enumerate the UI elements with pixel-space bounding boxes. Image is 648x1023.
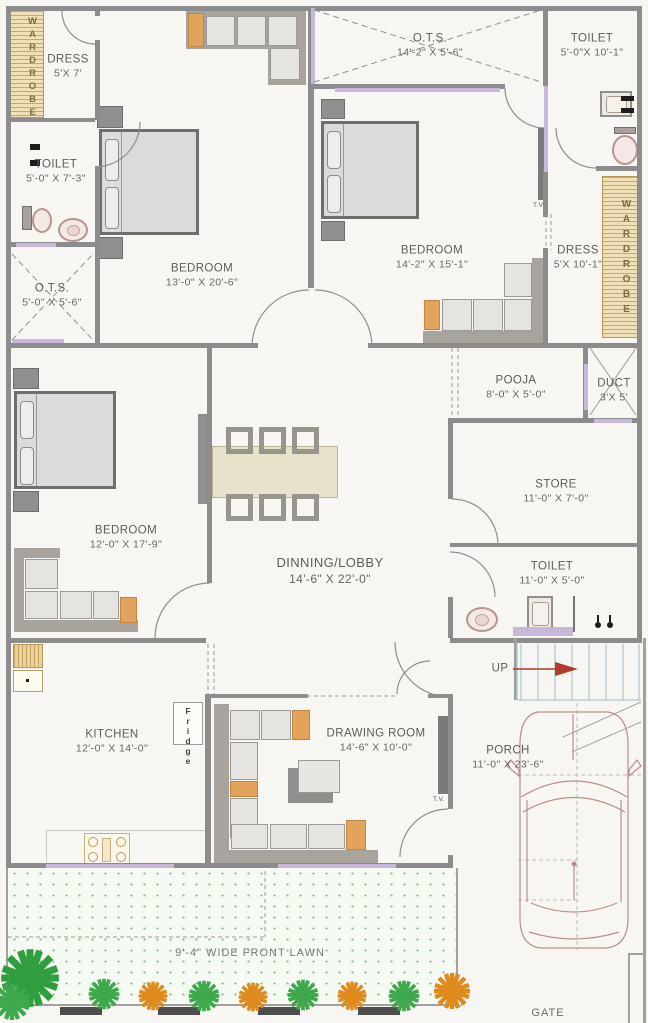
room-dims: 12'-0" X 14'-0" xyxy=(76,743,148,757)
room-name: BEDROOM xyxy=(90,524,162,539)
room-name: DRAWING ROOM xyxy=(327,727,426,742)
basin-bowl xyxy=(475,614,489,626)
stair-cut-marks xyxy=(563,702,641,752)
bedside-table xyxy=(13,368,39,389)
room-label-bedroom3: BEDROOM 12'-0" X 17'-9" xyxy=(90,524,162,553)
room-label-bedroom2: BEDROOM 14'-2" X 15'-1" xyxy=(396,244,468,273)
dining-chair xyxy=(259,427,286,454)
room-label-store: STORE 11'-0" X 7'-0" xyxy=(523,478,588,507)
stove-center xyxy=(102,838,111,862)
window xyxy=(12,339,64,343)
stair-wall xyxy=(514,638,517,700)
door-hardware xyxy=(30,144,40,150)
wall xyxy=(448,855,453,868)
window xyxy=(16,243,56,247)
wall xyxy=(448,694,453,809)
pillow xyxy=(105,187,119,229)
wall xyxy=(450,543,640,547)
faucet-stem xyxy=(597,615,599,622)
window xyxy=(278,864,396,868)
wall xyxy=(450,638,642,643)
room-name: O.T.S. xyxy=(22,282,82,297)
room-name: BEDROOM xyxy=(396,244,468,259)
room-name: POOJA xyxy=(486,374,546,389)
up-arrow xyxy=(513,662,578,676)
up-label: UP xyxy=(492,662,509,677)
sofa-cushion xyxy=(261,710,291,740)
gate-post-line xyxy=(628,953,630,1023)
porch-roof-grid xyxy=(518,703,641,950)
room-label-dress-left: DRESS 5'X 7' xyxy=(47,53,89,82)
mattress-line xyxy=(343,124,344,216)
sofa-accent xyxy=(346,820,366,850)
room-name: DRESS xyxy=(554,244,603,259)
sofa-accent xyxy=(230,781,258,797)
wall xyxy=(637,6,642,643)
pillow xyxy=(20,401,34,439)
room-name: PORCH xyxy=(472,744,544,759)
dining-chair xyxy=(292,494,319,521)
sofa-back xyxy=(14,548,24,630)
sofa-cushion xyxy=(231,824,268,849)
door-hardware xyxy=(621,108,634,113)
boundary-wall xyxy=(6,1004,458,1006)
wall xyxy=(428,694,450,698)
window xyxy=(46,864,174,868)
sofa-cushion xyxy=(268,16,297,46)
wc xyxy=(612,135,638,165)
gate-post-line xyxy=(628,953,644,955)
room-name: DINNING/LOBBY xyxy=(276,555,383,572)
room-dims: 8'-0" X 5'-0" xyxy=(486,389,546,403)
sofa-cushion xyxy=(230,742,258,780)
room-dims: 14'-2" X 5'-6" xyxy=(397,47,463,61)
lawn-label: 9'-4" WIDE FRONT LAWN xyxy=(175,946,325,960)
room-dims: 5'-0"X 10'-1" xyxy=(561,47,624,61)
dining-chair xyxy=(292,427,319,454)
room-dims: 13'-0" X 20'-6" xyxy=(166,277,238,291)
window xyxy=(513,627,573,636)
wall xyxy=(543,6,548,86)
wall xyxy=(10,118,95,122)
room-dims: 12'-0" X 17'-9" xyxy=(90,539,162,553)
wall xyxy=(543,248,548,346)
wc-tank xyxy=(614,127,636,134)
window xyxy=(311,8,315,84)
wc xyxy=(32,208,52,233)
room-name: TOILET xyxy=(519,560,584,575)
room-name: KITCHEN xyxy=(76,728,148,743)
room-name: TOILET xyxy=(561,32,624,47)
window xyxy=(594,419,632,423)
dining-chair xyxy=(226,427,253,454)
fence-strip xyxy=(358,1007,400,1015)
wall xyxy=(6,638,206,643)
pillow xyxy=(105,139,119,181)
room-label-dining: DINNING/LOBBY 14'-6" X 22'-0" xyxy=(276,555,383,587)
mattress-line xyxy=(121,132,122,232)
wall xyxy=(543,170,548,217)
sofa-accent xyxy=(292,710,310,740)
room-dims: 5'-0" X 5'-6" xyxy=(22,297,82,311)
sofa-cushion xyxy=(504,263,532,297)
sofa-cushion xyxy=(60,591,92,619)
bedside-table xyxy=(97,237,123,259)
floor-plan: T.V. T.V. Fridge xyxy=(0,0,648,1023)
wall xyxy=(95,40,100,120)
bedside-table xyxy=(97,106,123,128)
room-name: DRESS xyxy=(47,53,89,68)
tv-unit-drawing xyxy=(438,716,448,794)
sofa-accent xyxy=(424,300,440,330)
stove-burner xyxy=(116,852,126,862)
bedside-table xyxy=(13,491,39,512)
wall xyxy=(207,343,212,583)
tv-label: T.V. xyxy=(433,796,445,803)
sofa-accent xyxy=(120,597,137,623)
room-label-ots-left: O.T.S. 5'-0" X 5'-6" xyxy=(22,282,82,311)
window xyxy=(584,364,588,410)
room-dims: 5'X 7' xyxy=(47,68,89,82)
room-dims: 11'-0" X 23'-6" xyxy=(472,759,544,773)
room-label-bedroom1: BEDROOM 13'-0" X 20'-6" xyxy=(166,262,238,291)
fridge: Fridge xyxy=(173,702,203,745)
wall xyxy=(6,6,11,868)
sink-drain xyxy=(26,679,29,682)
sofa-cushion xyxy=(504,299,532,331)
wall xyxy=(95,166,100,347)
center-table xyxy=(298,760,340,793)
sofa-cushion xyxy=(93,591,119,619)
room-dims: 5'-0" X 7'-3" xyxy=(26,173,86,187)
wc-tank xyxy=(22,206,32,230)
room-dims: 5'X 10'-1" xyxy=(554,259,603,273)
room-label-dress-right: DRESS 5'X 10'-1" xyxy=(554,244,603,273)
dining-chair xyxy=(226,494,253,521)
room-label-ots-top: O.T.S. 14'-2" X 5'-6" xyxy=(397,32,463,61)
wall xyxy=(205,694,211,868)
wall xyxy=(448,418,453,499)
room-name: TOILET xyxy=(26,158,86,173)
bedside-table xyxy=(321,221,345,241)
sofa-cushion xyxy=(237,16,266,46)
room-dims: 11'-0" X 7'-0" xyxy=(523,493,588,507)
pillow xyxy=(327,175,341,213)
room-dims: 14'-6" X 10'-0" xyxy=(327,742,426,756)
wall xyxy=(368,343,642,348)
wall xyxy=(210,694,308,698)
sofa-back xyxy=(214,704,229,864)
sofa-cushion xyxy=(25,559,58,589)
wall xyxy=(596,166,637,171)
wall xyxy=(6,343,258,348)
fridge-label: Fridge xyxy=(183,706,193,766)
room-dims: 11'-0" X 5'-0" xyxy=(519,575,584,589)
wall xyxy=(448,597,453,638)
fence-strip xyxy=(60,1007,102,1015)
room-label-drawing: DRAWING ROOM 14'-6" X 10'-0" xyxy=(327,727,426,756)
faucet xyxy=(595,622,601,628)
sofa-cushion xyxy=(442,299,472,331)
sofa-cushion xyxy=(230,710,260,740)
boundary-wall xyxy=(456,868,458,1006)
room-label-porch: PORCH 11'-0" X 23'-6" xyxy=(472,744,544,773)
room-label-toilet-common: TOILET 11'-0" X 5'-0" xyxy=(519,560,584,589)
wc-bowl xyxy=(532,602,549,626)
room-name: BEDROOM xyxy=(166,262,238,277)
room-name: DUCT xyxy=(597,377,631,392)
room-label-toilet-right: TOILET 5'-0"X 10'-1" xyxy=(561,32,624,61)
room-label-duct: DUCT 3'X 5' xyxy=(597,377,631,406)
faucet-stem xyxy=(609,615,611,622)
stove-burner xyxy=(88,852,98,862)
sofa-cushion xyxy=(25,591,58,619)
fence-strip xyxy=(158,1007,200,1015)
room-label-kitchen: KITCHEN 12'-0" X 14'-0" xyxy=(76,728,148,757)
room-label-toilet-left: TOILET 5'-0" X 7'-3" xyxy=(26,158,86,187)
room-dims: 3'X 5' xyxy=(597,392,631,406)
stove-burner xyxy=(88,837,98,847)
pillow xyxy=(327,131,341,169)
sofa-back xyxy=(214,850,378,864)
room-name: STORE xyxy=(523,478,588,493)
bedside-table xyxy=(321,99,345,119)
room-label-wardrobe-right: WARDROBE xyxy=(610,186,632,332)
room-name: O.T.S. xyxy=(397,32,463,47)
room-dims: 14'-6" X 22'-0" xyxy=(276,572,383,588)
sofa-cushion xyxy=(308,824,345,849)
shower-divider xyxy=(573,596,575,632)
room-dims: 14'-2" X 15'-1" xyxy=(396,259,468,273)
stove-burner xyxy=(116,837,126,847)
stairs xyxy=(517,644,641,700)
window xyxy=(335,88,500,92)
boundary-wall xyxy=(643,638,646,1023)
boundary-wall xyxy=(6,868,8,1006)
front-lawn-area xyxy=(8,868,456,1006)
sofa-cushion xyxy=(206,16,235,46)
gate-post xyxy=(448,988,462,1006)
basin-bowl xyxy=(67,225,80,236)
door-hardware xyxy=(621,96,634,101)
sofa-cushion xyxy=(270,48,300,80)
sofa-cushion xyxy=(270,824,307,849)
fence-strip xyxy=(258,1007,300,1015)
gate-label: GATE xyxy=(531,1006,564,1020)
pillow xyxy=(20,447,34,485)
sofa-cushion xyxy=(473,299,503,331)
faucet xyxy=(607,622,613,628)
dining-chair xyxy=(259,494,286,521)
mattress-line xyxy=(36,394,37,486)
sofa-accent xyxy=(188,13,204,47)
wall xyxy=(95,6,100,16)
room-label-pooja: POOJA 8'-0" X 5'-0" xyxy=(486,374,546,403)
room-label-wardrobe-left: WARDROBE xyxy=(16,16,38,116)
window xyxy=(544,86,548,172)
sink-drainboard xyxy=(13,644,43,668)
